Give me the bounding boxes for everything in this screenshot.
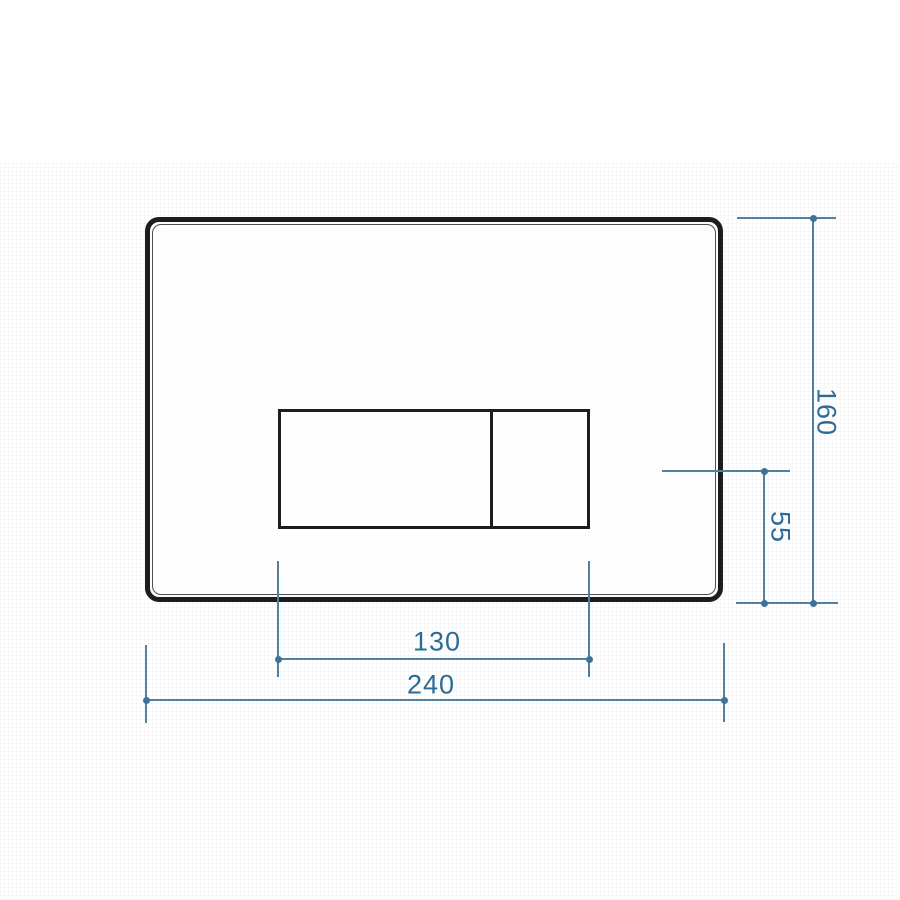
dim-endpoint-dot <box>810 600 817 607</box>
dim-endpoint-dot <box>810 215 817 222</box>
dim-label-button-width: 130 <box>413 627 461 658</box>
dim-endpoint-dot <box>721 697 728 704</box>
ext-line-plate-bottom <box>736 602 838 604</box>
dim-label-button-axis-from-bottom: 55 <box>765 511 796 543</box>
dim-endpoint-dot <box>275 656 282 663</box>
technical-drawing-canvas: 160 55 130 240 <box>0 0 900 900</box>
dim-endpoint-dot <box>761 468 768 475</box>
dim-label-plate-height: 160 <box>811 388 842 436</box>
dim-endpoint-dot <box>143 697 150 704</box>
dim-line-button-width <box>278 658 589 660</box>
dim-endpoint-dot <box>761 600 768 607</box>
ext-line-plate-right <box>723 643 725 722</box>
dim-endpoint-dot <box>586 656 593 663</box>
background-top-band <box>0 0 900 163</box>
ext-line-plate-top <box>737 217 836 219</box>
ext-line-plate-left <box>145 645 147 723</box>
ext-line-button-axis <box>662 470 790 472</box>
dim-label-plate-width: 240 <box>407 670 455 701</box>
flush-button-outline <box>278 409 590 529</box>
flush-button-divider-line <box>490 410 493 528</box>
